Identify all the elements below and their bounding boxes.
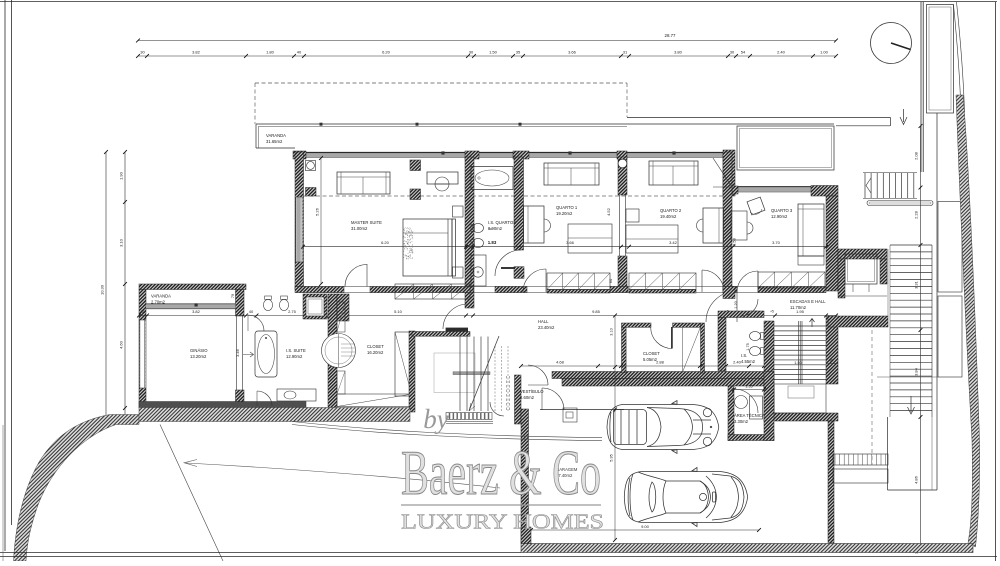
svg-text:2.28: 2.28 [914, 210, 919, 219]
svg-text:2.60m2: 2.60m2 [520, 395, 535, 400]
svg-text:79: 79 [231, 294, 235, 298]
svg-text:23.40m2: 23.40m2 [538, 325, 555, 330]
svg-text:3.31: 3.31 [914, 280, 919, 289]
svg-text:10.30: 10.30 [100, 284, 105, 295]
svg-text:1.83: 1.83 [488, 240, 497, 245]
svg-text:1.90: 1.90 [119, 171, 124, 180]
svg-text:31.65m2: 31.65m2 [266, 139, 283, 144]
svg-text:3.10: 3.10 [119, 238, 124, 247]
svg-text:3.10: 3.10 [610, 328, 614, 335]
svg-text:3.46: 3.46 [235, 348, 240, 357]
svg-text:5.95: 5.95 [610, 454, 614, 461]
svg-text:1.00: 1.00 [820, 50, 829, 55]
svg-text:2.75: 2.75 [288, 309, 297, 314]
svg-text:LUXURY HOMES: LUXURY HOMES [401, 510, 604, 534]
svg-text:○O: ○O [488, 227, 493, 231]
svg-text:3.82: 3.82 [192, 309, 201, 314]
svg-text:3.70: 3.70 [772, 240, 781, 245]
svg-text:2.08: 2.08 [914, 151, 919, 160]
svg-text:VESTÍBULO: VESTÍBULO [520, 389, 544, 394]
svg-text:1.20: 1.20 [734, 301, 738, 308]
svg-text:4.60: 4.60 [119, 340, 124, 349]
svg-text:9.00: 9.00 [641, 524, 650, 529]
svg-text:60: 60 [608, 278, 613, 283]
svg-text:35: 35 [516, 50, 521, 55]
svg-text:11.70m2: 11.70m2 [790, 305, 807, 310]
svg-text:3.66: 3.66 [568, 50, 577, 55]
svg-text:3.82: 3.82 [192, 50, 201, 55]
svg-text:MASTER SUITE: MASTER SUITE [351, 220, 382, 225]
svg-text:2.40: 2.40 [777, 50, 786, 55]
svg-text:12.90m2: 12.90m2 [286, 354, 303, 359]
svg-text:5.10: 5.10 [394, 309, 403, 314]
svg-text:VARANDA: VARANDA [151, 294, 171, 299]
svg-text:13.20m2: 13.20m2 [190, 354, 207, 359]
svg-text:4.86: 4.86 [914, 475, 919, 484]
svg-text:2.88: 2.88 [656, 360, 665, 365]
svg-text:3.58: 3.58 [732, 237, 737, 246]
svg-text:QUARTO 3: QUARTO 3 [771, 208, 793, 213]
svg-text:16.20m2: 16.20m2 [367, 350, 384, 355]
svg-text:CLOSET: CLOSET [643, 351, 660, 356]
svg-text:6.20: 6.20 [382, 50, 391, 55]
svg-text:5.26: 5.26 [315, 207, 320, 216]
svg-text:31.00m2: 31.00m2 [351, 226, 368, 231]
svg-text:54: 54 [741, 50, 746, 55]
svg-text:19.40m2: 19.40m2 [660, 214, 677, 219]
svg-text:I.S.: I.S. [741, 353, 747, 358]
svg-text:1.50: 1.50 [489, 50, 498, 55]
svg-text:30: 30 [140, 50, 145, 55]
svg-text:3.84: 3.84 [914, 367, 919, 376]
svg-text:3.42: 3.42 [669, 240, 678, 245]
svg-text:CLOSET: CLOSET [367, 344, 384, 349]
svg-text:3.30m2: 3.30m2 [734, 419, 749, 424]
svg-text:VARANDA: VARANDA [266, 133, 286, 138]
svg-text:30: 30 [469, 50, 474, 55]
svg-text:2.70m2: 2.70m2 [151, 300, 166, 305]
svg-text:HALL: HALL [538, 319, 549, 324]
svg-text:12.90m2: 12.90m2 [771, 214, 788, 219]
svg-text:3.80: 3.80 [674, 50, 683, 55]
svg-text:+5: +5 [770, 310, 774, 314]
svg-text:1.75: 1.75 [746, 343, 750, 350]
svg-text:40: 40 [297, 50, 302, 55]
svg-text:40: 40 [829, 359, 833, 363]
svg-text:30: 30 [730, 50, 735, 55]
svg-text:I.S. SUITE: I.S. SUITE [286, 348, 306, 353]
svg-text:QUARTO 1: QUARTO 1 [556, 205, 578, 210]
svg-text:19.20m2: 19.20m2 [556, 211, 573, 216]
svg-text:6.20: 6.20 [381, 240, 390, 245]
svg-text:28.77: 28.77 [665, 33, 677, 38]
svg-text:1.50: 1.50 [794, 361, 801, 365]
svg-text:4.52: 4.52 [606, 207, 611, 216]
svg-text:40: 40 [249, 309, 254, 314]
svg-text:9.85: 9.85 [592, 309, 601, 314]
svg-text:3.66: 3.66 [566, 240, 575, 245]
svg-text:1.35: 1.35 [745, 385, 752, 389]
svg-text:4.55m2: 4.55m2 [741, 359, 756, 364]
svg-text:Baerz & Co: Baerz & Co [401, 438, 601, 508]
svg-text:1.80: 1.80 [266, 50, 275, 55]
svg-text:by: by [423, 404, 449, 434]
svg-text:4.68: 4.68 [556, 360, 565, 365]
svg-text:QUARTO 2: QUARTO 2 [660, 208, 682, 213]
svg-text:30: 30 [141, 309, 146, 314]
svg-text:ESCADAS E HALL: ESCADAS E HALL [790, 299, 826, 304]
svg-text:I.S. QUARTOS: I.S. QUARTOS [488, 220, 516, 225]
svg-text:31: 31 [623, 50, 628, 55]
svg-text:GINÁSIO: GINÁSIO [190, 348, 208, 353]
